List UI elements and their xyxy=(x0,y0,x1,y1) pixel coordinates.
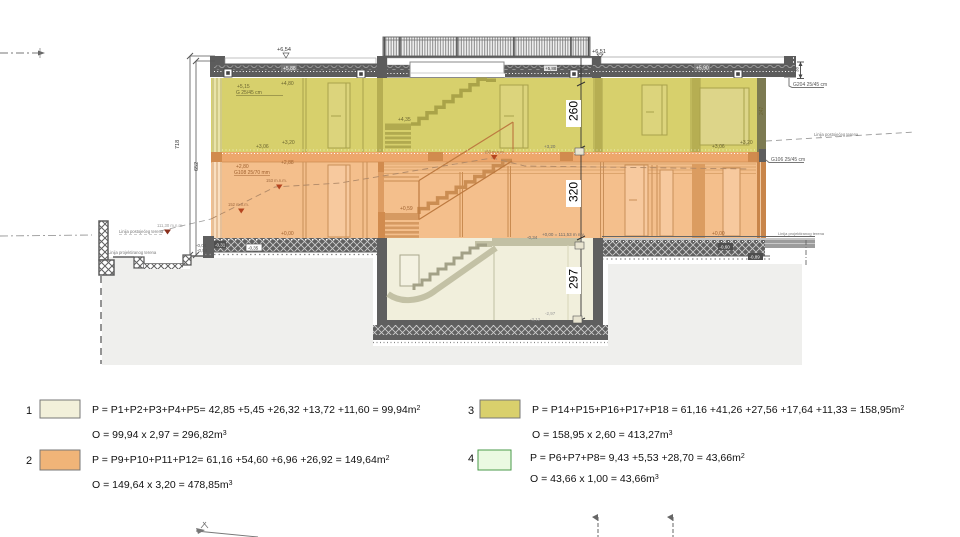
svg-text:P = P14+P15+P16+P17+P18 = 61,1: P = P14+P15+P16+P17+P18 = 61,16 +41,26 +… xyxy=(532,404,904,416)
svg-text:4: 4 xyxy=(468,453,474,465)
svg-text:-0,35: -0,35 xyxy=(248,246,259,251)
svg-text:+5,90: +5,90 xyxy=(696,65,709,71)
svg-text:+2,88: +2,88 xyxy=(281,160,294,166)
svg-text:G108 25/70 mm: G108 25/70 mm xyxy=(234,170,270,176)
svg-text:+5,88: +5,88 xyxy=(545,66,557,71)
svg-text:Linija postojećeg terena: Linija postojećeg terena xyxy=(119,229,164,234)
svg-text:+3,20: +3,20 xyxy=(740,140,753,146)
svg-text:+3,20: +3,20 xyxy=(544,144,556,149)
svg-text:320: 320 xyxy=(567,182,581,202)
svg-text:Linija postojećeg terena: Linija postojećeg terena xyxy=(814,132,859,137)
svg-text:+3,20: +3,20 xyxy=(282,140,295,146)
svg-text:297: 297 xyxy=(567,269,581,289)
svg-text:718: 718 xyxy=(175,140,181,149)
svg-text:-0,60: -0,60 xyxy=(720,245,731,250)
svg-text:+0,00: +0,00 xyxy=(281,231,294,237)
svg-text:Linija projektiranog terena: Linija projektiranog terena xyxy=(108,250,157,255)
svg-text:247: 247 xyxy=(759,106,765,115)
svg-text:O = 99,94 x 2,97 = 296,82m3: O = 99,94 x 2,97 = 296,82m3 xyxy=(92,429,227,441)
svg-text:-2,97: -2,97 xyxy=(545,311,556,316)
svg-text:O = 149,64 x 3,20 = 478,85m3: O = 149,64 x 3,20 = 478,85m3 xyxy=(92,479,233,491)
svg-text:-0,34: -0,34 xyxy=(527,235,538,240)
svg-text:-0,54: -0,54 xyxy=(197,248,208,253)
svg-text:Linija projektiranog terena: Linija projektiranog terena xyxy=(778,231,825,236)
svg-text:-0,89: -0,89 xyxy=(750,255,761,260)
svg-text:38: 38 xyxy=(795,66,800,72)
svg-text:153 m.n.m.: 153 m.n.m. xyxy=(266,178,287,183)
svg-text:2: 2 xyxy=(26,455,32,467)
svg-text:P = P6+P7+P8= 9,43 +5,53 +28,7: P = P6+P7+P8= 9,43 +5,53 +28,70 = 43,66m… xyxy=(530,452,745,464)
svg-text:P = P9+P10+P11+P12= 61,16 +54,: P = P9+P10+P11+P12= 61,16 +54,60 +6,96 +… xyxy=(92,454,390,466)
svg-text:-3,12: -3,12 xyxy=(530,317,541,322)
svg-text:652: 652 xyxy=(194,162,200,171)
svg-text:+0,00 = 111,53 m n.v.: +0,00 = 111,53 m n.v. xyxy=(542,232,585,237)
svg-text:+6,54: +6,54 xyxy=(277,47,291,53)
svg-text:P = P1+P2+P3+P4+P5= 42,85 +5,4: P = P1+P2+P3+P4+P5= 42,85 +5,45 +26,32 +… xyxy=(92,404,421,416)
svg-text:G 25/45 cm: G 25/45 cm xyxy=(236,90,262,96)
svg-text:152 m.n.m.: 152 m.n.m. xyxy=(228,202,249,207)
svg-text:+3,06: +3,06 xyxy=(256,144,269,150)
svg-text:3: 3 xyxy=(468,405,474,417)
svg-text:1: 1 xyxy=(26,405,32,417)
svg-text:260: 260 xyxy=(567,101,581,121)
svg-text:G204 25/45 cm: G204 25/45 cm xyxy=(793,82,827,88)
svg-text:G106 25/45 cm: G106 25/45 cm xyxy=(771,157,805,163)
svg-text:111,30 m.n.m.: 111,30 m.n.m. xyxy=(157,223,183,228)
svg-text:150 m.n.m.: 150 m.n.m. xyxy=(484,150,505,155)
svg-text:O = 43,66 x 1,00 = 43,66m3: O = 43,66 x 1,00 = 43,66m3 xyxy=(530,473,659,485)
svg-text:+0,59: +0,59 xyxy=(400,206,413,212)
svg-text:+0,00: +0,00 xyxy=(712,231,725,237)
svg-text:-0,31: -0,31 xyxy=(215,243,226,248)
svg-text:+3,06: +3,06 xyxy=(712,144,725,150)
svg-text:+5,88: +5,88 xyxy=(283,66,296,72)
svg-text:+4,80: +4,80 xyxy=(281,81,294,87)
svg-text:+4,35: +4,35 xyxy=(398,117,411,123)
svg-text:O = 158,95 x 2,60 = 413,27m3: O = 158,95 x 2,60 = 413,27m3 xyxy=(532,429,673,441)
